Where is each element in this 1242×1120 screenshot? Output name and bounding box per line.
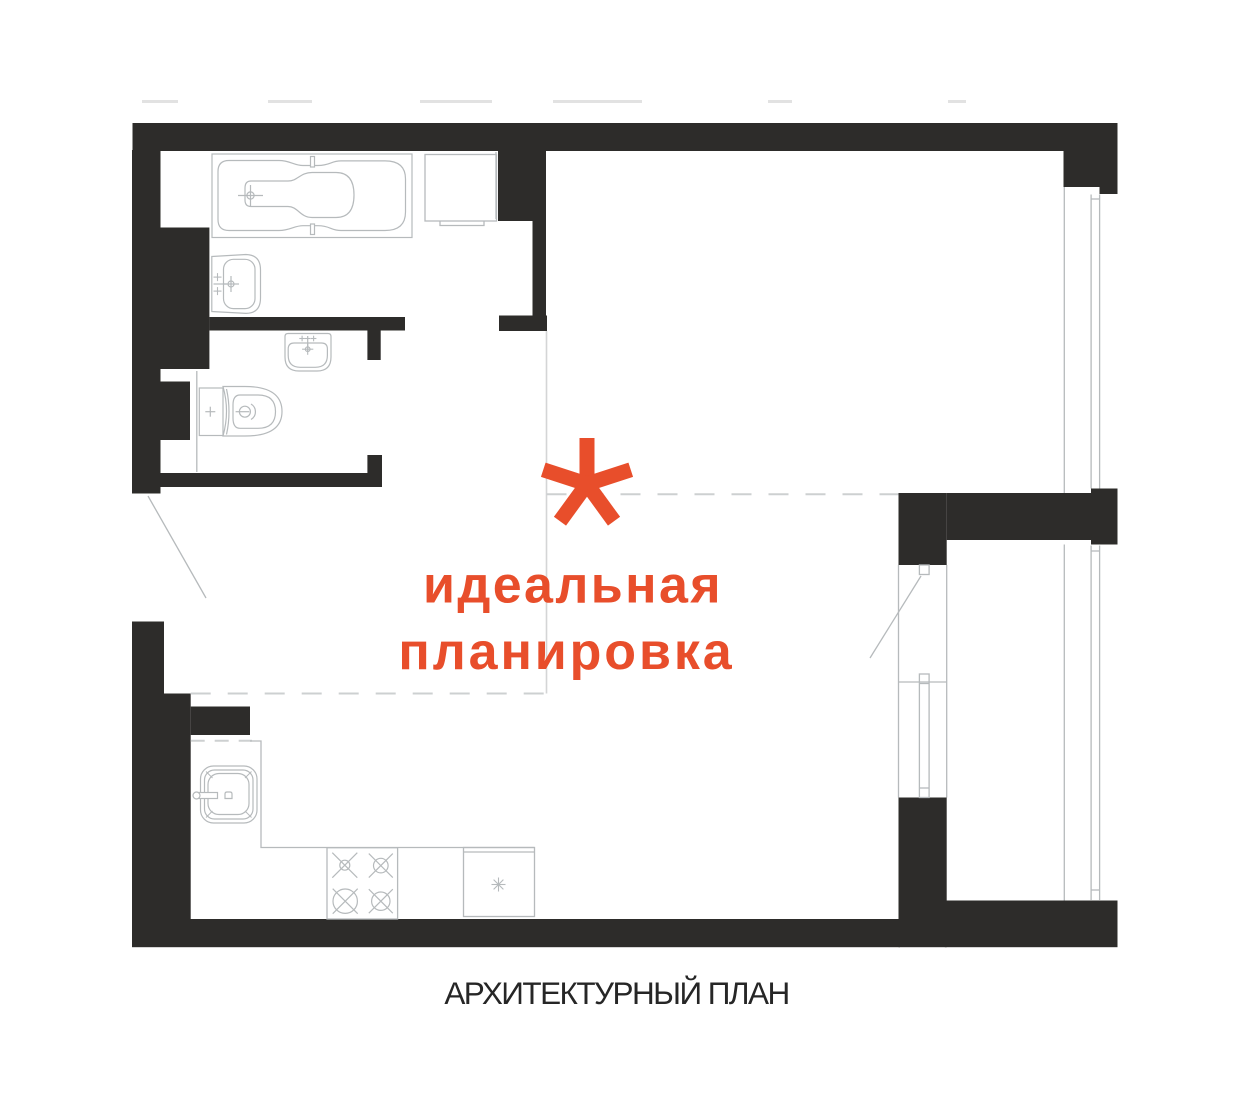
svg-text:идеальная: идеальная [423, 557, 723, 615]
svg-text:АРХИТЕКТУРНЫЙ ПЛАН: АРХИТЕКТУРНЫЙ ПЛАН [444, 975, 788, 1011]
svg-text:планировка: планировка [398, 623, 734, 681]
